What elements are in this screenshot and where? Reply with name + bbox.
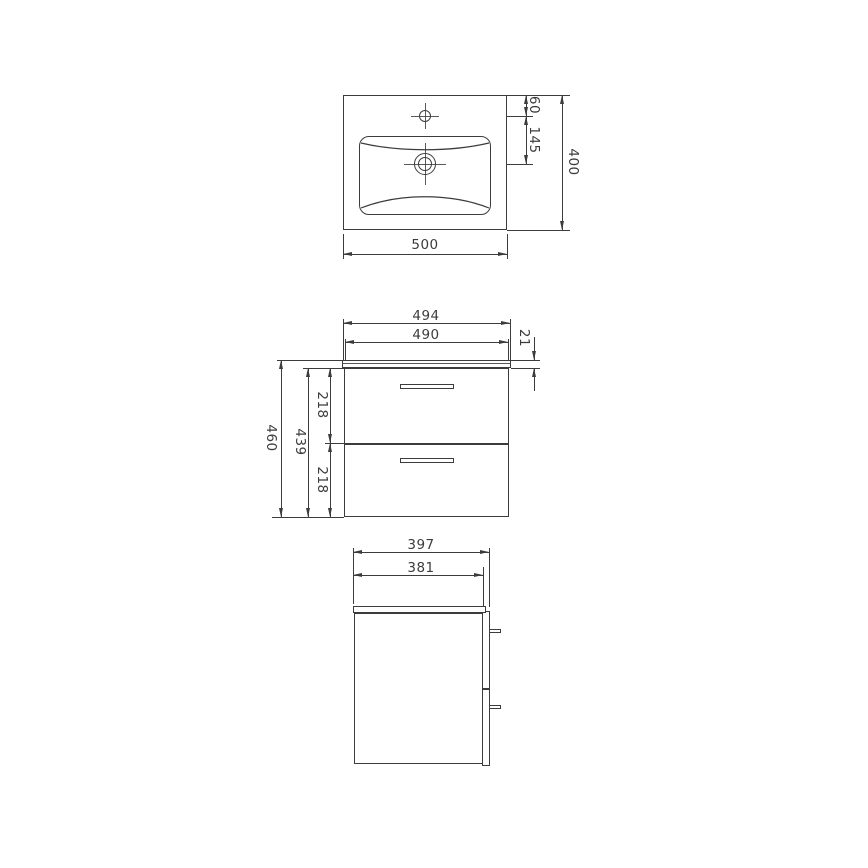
arrowhead [328, 368, 332, 377]
dim-label-drawer-bottom: 218 [314, 466, 330, 493]
countertop-edge-line [343, 363, 510, 364]
countertop-panel-side [353, 606, 486, 613]
arrowhead [306, 368, 310, 377]
arrowhead [532, 368, 536, 377]
arrowhead [343, 321, 352, 325]
dim-label-total-height: 460 [263, 424, 279, 451]
ext-line [489, 548, 490, 607]
arrowhead [343, 252, 352, 256]
arrowhead [480, 550, 489, 554]
drawer-handle-top-side [489, 629, 501, 633]
ext-line [483, 567, 484, 609]
ext-line [511, 368, 540, 369]
dim-label-cabinet-depth: 381 [407, 560, 434, 576]
ext-line [511, 360, 540, 361]
dim-label-drawer-top: 218 [314, 391, 330, 418]
dim-line [308, 368, 309, 517]
drawer-handle-bottom-side [489, 705, 501, 709]
arrowhead [328, 508, 332, 517]
dim-line [562, 95, 563, 230]
countertop-panel [342, 360, 511, 368]
arrowhead [345, 340, 354, 344]
dim-label-depth: 400 [565, 148, 581, 175]
dim-line [281, 360, 282, 517]
dim-label-faucet-drain: 145 [526, 126, 542, 153]
arrowhead [474, 573, 483, 577]
arrowhead [353, 573, 362, 577]
ext-line [272, 517, 344, 518]
drawer-handle-top [400, 384, 454, 389]
ext-line [507, 116, 533, 117]
arrowhead [499, 340, 508, 344]
dim-line [343, 254, 507, 255]
dim-label-cabinet-height: 439 [292, 428, 308, 455]
ext-line [510, 319, 511, 360]
dim-label-cabinet-width: 490 [412, 327, 439, 343]
ext-line [277, 360, 342, 361]
dim-line [330, 443, 331, 517]
faucet-centerline-v [425, 103, 426, 129]
dim-label-width: 500 [411, 237, 438, 253]
drawer-front-divider [482, 688, 490, 690]
arrowhead [279, 360, 283, 369]
ext-line [507, 164, 533, 165]
ext-line [507, 234, 508, 259]
arrowhead [279, 508, 283, 517]
dim-line [330, 368, 331, 443]
drain-centerline-v [425, 143, 426, 185]
arrowhead [524, 155, 528, 164]
dim-label-countertop-thickness: 21 [516, 329, 532, 347]
arrowhead [353, 550, 362, 554]
ext-line [508, 339, 509, 360]
cabinet-side-outline [354, 613, 483, 764]
dim-label-countertop-width: 494 [412, 308, 439, 324]
ext-line [343, 319, 344, 360]
technical-drawing-canvas: 60 145 400 500 494 490 [0, 0, 868, 868]
arrowhead [532, 351, 536, 360]
dim-label-faucet-offset: 60 [526, 96, 542, 114]
arrowhead [501, 321, 510, 325]
arrowhead [328, 443, 332, 452]
arrowhead [560, 221, 564, 230]
dim-label-total-depth: 397 [407, 537, 434, 553]
arrowhead [306, 508, 310, 517]
arrowhead [498, 252, 507, 256]
drawer-handle-bottom [400, 458, 454, 463]
drawer-divider-line [344, 443, 509, 445]
arrowhead [524, 116, 528, 125]
arrowhead [560, 95, 564, 104]
ext-line [507, 230, 570, 231]
arrowhead [328, 434, 332, 443]
